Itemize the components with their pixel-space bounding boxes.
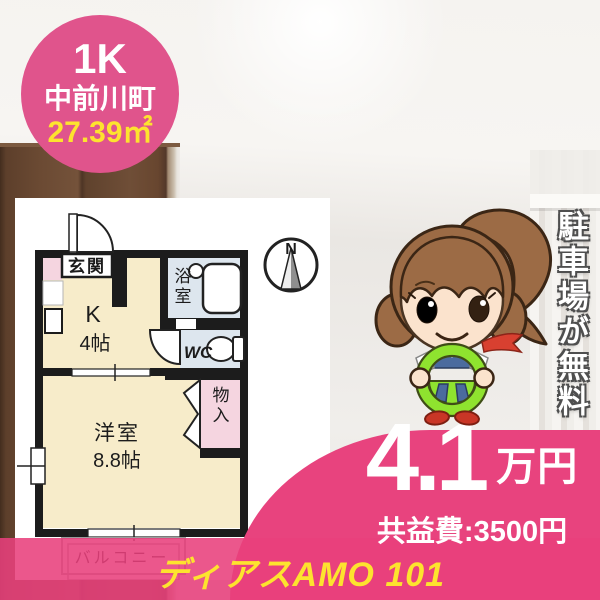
entrance-label: 玄関 <box>68 256 106 276</box>
compass-icon: N <box>265 239 317 291</box>
main-room-size: 8.8帖 <box>93 449 141 472</box>
listing-flyer: 玄関 K 4帖 浴室 WC 物入 洋室 8.8帖 バルコニー <box>0 0 600 600</box>
listing-badge: 1K 中前川町 27.39㎡ <box>21 15 179 173</box>
bath-label: 浴室 <box>172 267 192 307</box>
bathtub <box>203 264 241 313</box>
badge-town: 中前川町 <box>44 81 156 116</box>
kitchen-size: 4帖 <box>79 332 110 355</box>
rent-unit: 万円 <box>484 434 578 502</box>
kitchen-label: K <box>85 301 101 327</box>
property-name: ディアスAMO 101 <box>110 547 490 596</box>
compass-n-label: N <box>285 241 297 258</box>
parking-free-ribbon: 駐車場が無料 <box>548 210 593 420</box>
badge-area: 27.39㎡ <box>47 116 152 151</box>
main-room-label: 洋室 <box>94 422 140 445</box>
common-fee: 共益費:3500円 <box>352 508 592 550</box>
kitchen-sink <box>45 309 62 333</box>
closet-label: 物入 <box>210 386 230 426</box>
driving-girl-mascot-icon <box>365 203 560 430</box>
badge-layout-type: 1K <box>73 37 127 81</box>
wc-label: WC <box>184 343 213 362</box>
